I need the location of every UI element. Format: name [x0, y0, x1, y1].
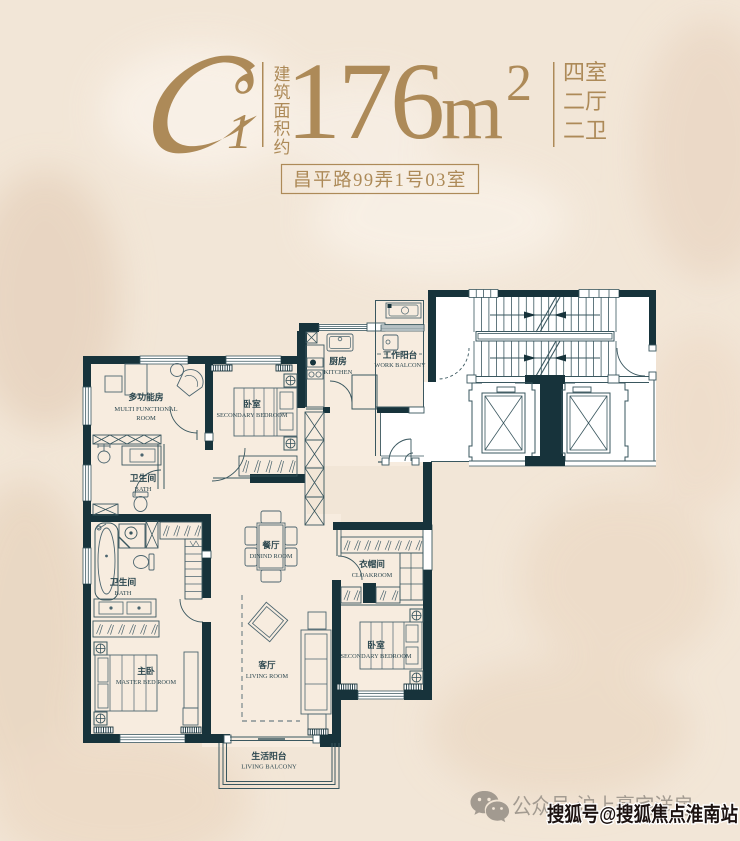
svg-text:搜狐号@搜狐焦点淮南站: 搜狐号@搜狐焦点淮南站 [547, 802, 738, 826]
svg-text:卫生间: 卫生间 [130, 472, 157, 483]
svg-text:SECONDARY BEDROOM: SECONDARY BEDROOM [341, 653, 412, 660]
svg-text:餐厅: 餐厅 [261, 539, 280, 550]
svg-text:LIVING BALCONY: LIVING BALCONY [241, 764, 297, 771]
svg-text:厨房: 厨房 [329, 355, 347, 366]
svg-text:二卫: 二卫 [563, 118, 607, 143]
svg-text:衣帽间: 衣帽间 [359, 558, 385, 569]
svg-text:WORK BALCONY: WORK BALCONY [374, 362, 426, 369]
svg-text:2: 2 [506, 55, 532, 112]
svg-text:卧室: 卧室 [367, 639, 385, 650]
svg-text:BATH: BATH [135, 486, 152, 493]
svg-text:卫生间: 卫生间 [110, 576, 137, 587]
svg-text:CLOAKROOM: CLOAKROOM [352, 572, 393, 579]
svg-text:KITCHEN: KITCHEN [324, 369, 353, 376]
svg-text:BATH: BATH [115, 590, 132, 597]
svg-text:m: m [441, 68, 503, 156]
svg-text:卧室: 卧室 [243, 398, 261, 409]
svg-text:生活阳台: 生活阳台 [251, 750, 286, 761]
svg-text:SECONDARY BEDROOM: SECONDARY BEDROOM [217, 412, 288, 419]
svg-text:1: 1 [227, 103, 252, 159]
svg-text:DININD ROOM: DININD ROOM [250, 553, 293, 560]
svg-text:客厅: 客厅 [257, 659, 276, 670]
svg-text:多功能房: 多功能房 [128, 391, 163, 402]
svg-text:昌平路99弄1号03室: 昌平路99弄1号03室 [293, 170, 467, 191]
svg-text:二厅: 二厅 [563, 89, 607, 114]
svg-text:主卧: 主卧 [137, 665, 155, 676]
svg-text:LIVING ROOM: LIVING ROOM [246, 673, 289, 680]
svg-text:MASTER BED ROOM: MASTER BED ROOM [116, 679, 177, 686]
svg-text:176: 176 [286, 40, 442, 162]
svg-text:四室: 四室 [563, 60, 607, 85]
svg-text:工作阳台: 工作阳台 [383, 349, 418, 360]
svg-text:MULTI FUNCTIONAL: MULTI FUNCTIONAL [114, 406, 177, 413]
svg-text:ROOM: ROOM [136, 415, 156, 422]
